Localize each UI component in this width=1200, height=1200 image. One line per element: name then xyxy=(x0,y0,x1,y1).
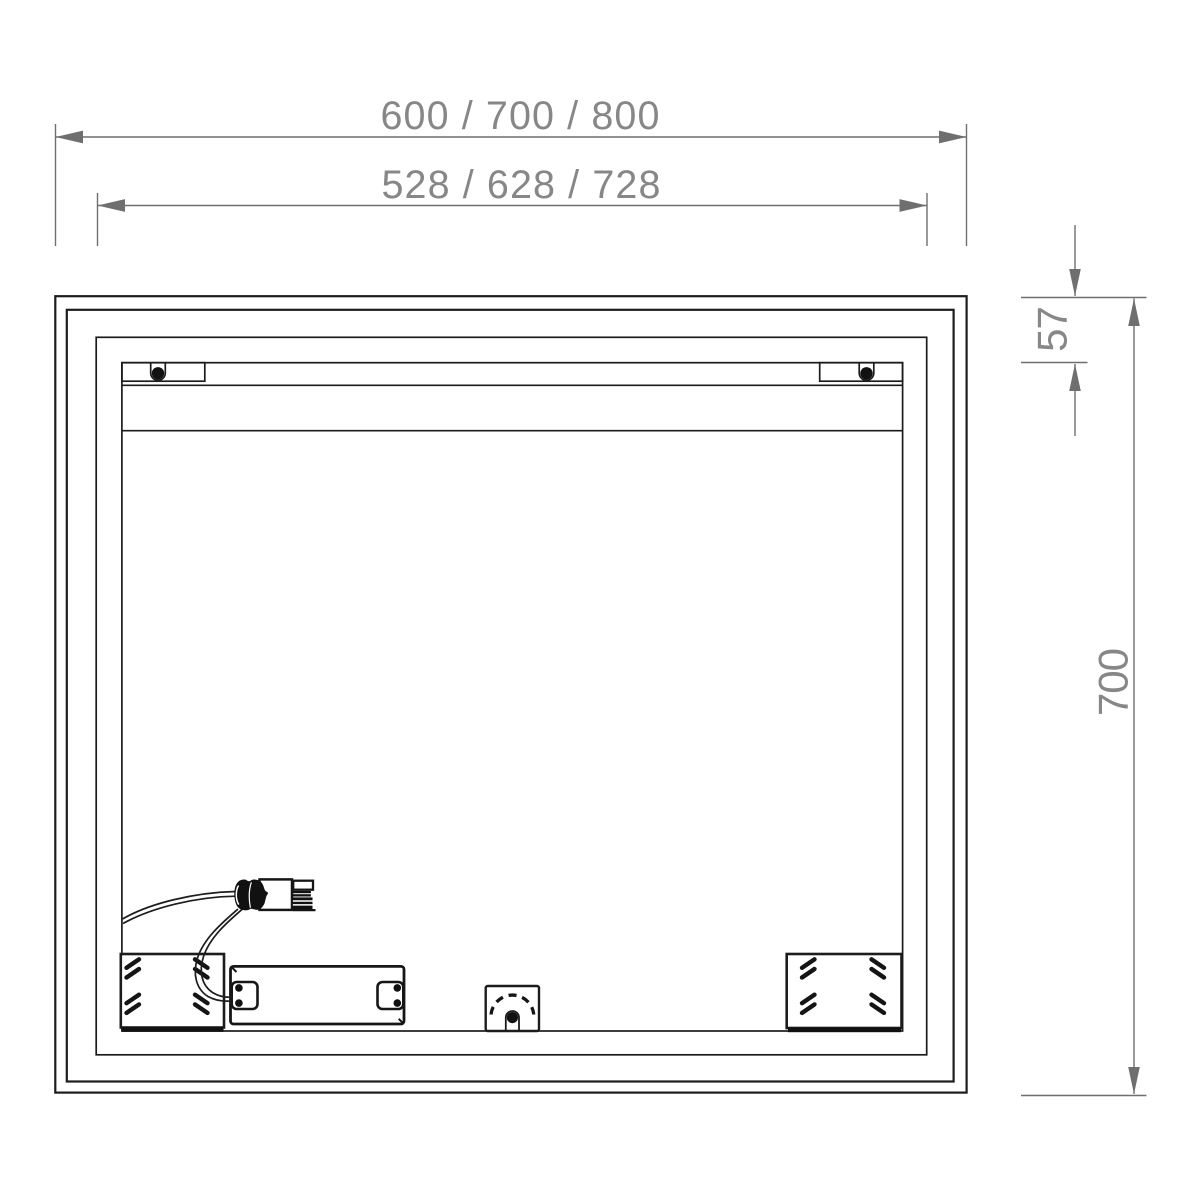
svg-text:57: 57 xyxy=(1029,307,1076,352)
svg-text:528 / 628 / 728: 528 / 628 / 728 xyxy=(381,163,661,207)
svg-text:600 / 700 / 800: 600 / 700 / 800 xyxy=(380,94,660,138)
svg-text:700: 700 xyxy=(1090,649,1137,716)
